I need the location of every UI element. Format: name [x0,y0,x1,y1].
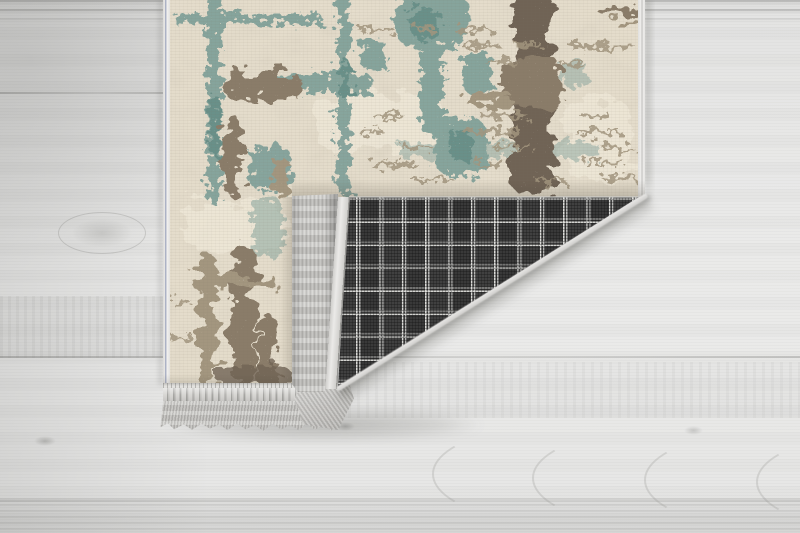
rug-binding-right [638,0,645,197]
rug-edge-shadow [158,0,163,385]
fringe-band-shadow [280,197,293,385]
rug-product-photo [0,0,800,533]
rug-binding-left [163,0,170,385]
fold-crease-shadow [292,180,645,197]
rug-edge-shadow [645,0,655,202]
rug [163,0,645,533]
fold-crease-highlight [349,196,639,198]
